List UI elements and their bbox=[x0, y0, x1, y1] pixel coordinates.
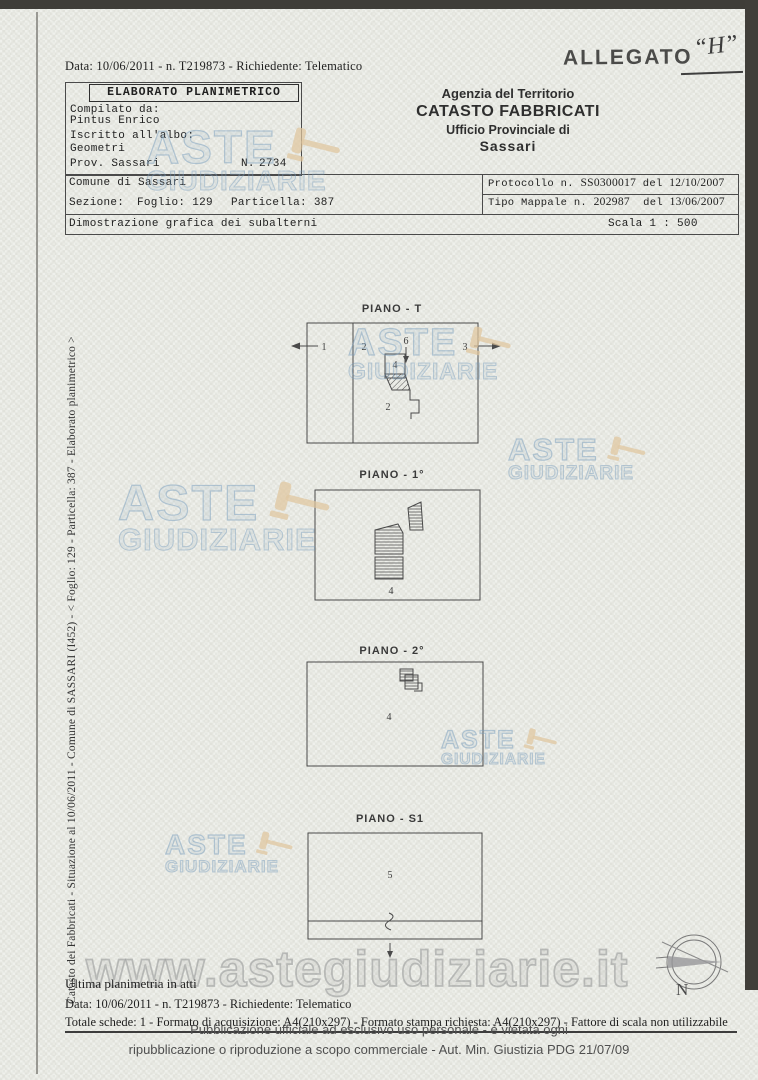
subaltern-4: 4 bbox=[389, 586, 394, 597]
scala-value: Scala 1 : 500 bbox=[608, 218, 698, 230]
table-divider-horizontal bbox=[66, 214, 738, 215]
plan-2-label: PIANO - 2° bbox=[359, 645, 424, 657]
sezione-label: Sezione: bbox=[69, 197, 124, 209]
mappale-label: Tipo Mappale n. bbox=[488, 197, 587, 209]
protocollo-date: 12/10/2007 bbox=[669, 177, 724, 189]
subaltern-2b: 2 bbox=[386, 402, 391, 413]
compass-icon bbox=[652, 928, 736, 1006]
plan-1-label: PIANO - 1° bbox=[359, 469, 424, 481]
watermark-aste-giudiziarie: ASTE GIUDIZIARIE bbox=[165, 831, 296, 875]
plan-t-label: PIANO - T bbox=[362, 303, 422, 315]
watermark-word-giudiziarie: GIUDIZIARIE bbox=[146, 168, 345, 194]
protocollo-del: del bbox=[643, 178, 663, 190]
subaltern-1: 1 bbox=[322, 342, 327, 353]
subaltern-5: 5 bbox=[388, 870, 393, 881]
protocollo-number: SS0300017 bbox=[580, 177, 636, 189]
stairwell-hatch-b bbox=[405, 675, 418, 689]
protocollo-label: Protocollo n. bbox=[488, 178, 574, 190]
scan-edge-left bbox=[36, 12, 38, 1074]
plan-s1-label: PIANO - S1 bbox=[356, 813, 424, 825]
mappale-del: del bbox=[643, 197, 663, 209]
watermark-word-giudiziarie: GIUDIZIARIE bbox=[348, 361, 515, 382]
tipo-mappale-row: Tipo Mappale n. 202987 del 13/06/2007 bbox=[488, 196, 725, 209]
protocollo-row: Protocollo n. SS0300017 del 12/10/2007 bbox=[488, 177, 725, 190]
agency-line1: Agenzia del Territorio bbox=[388, 86, 628, 101]
gavel-icon bbox=[263, 481, 335, 526]
side-rotated-caption: Catasto dei Fabbricati - Situazione al 1… bbox=[66, 282, 78, 1004]
north-label: N bbox=[676, 980, 688, 1000]
watermark-aste-giudiziarie: ASTE GIUDIZIARIE bbox=[441, 728, 560, 767]
agency-heading: Agenzia del Territorio CATASTO FABBRICAT… bbox=[388, 86, 628, 154]
footer-data-line: Data: 10/06/2011 - n. T219873 - Richiede… bbox=[65, 997, 351, 1012]
north-compass bbox=[652, 928, 736, 1011]
watermark-word-giudiziarie: GIUDIZIARIE bbox=[508, 465, 649, 482]
watermark-word-aste: ASTE bbox=[441, 729, 516, 752]
elaborato-title: ELABORATO PLANIMETRICO bbox=[89, 84, 299, 102]
gavel-icon bbox=[281, 127, 345, 167]
agency-line2: CATASTO FABBRICATI bbox=[388, 103, 628, 121]
watermark-aste-giudiziarie: ASTE GIUDIZIARIE bbox=[508, 436, 649, 482]
gavel-icon bbox=[603, 436, 649, 465]
scan-edge-top bbox=[0, 0, 758, 9]
dimostrazione-label: Dimostrazione grafica dei subalterni bbox=[69, 218, 317, 230]
allegato-stamp: ALLEGATO bbox=[563, 45, 693, 70]
agency-line4: Sassari bbox=[388, 138, 628, 154]
stairwell-hatch-upper bbox=[375, 524, 403, 554]
gavel-icon bbox=[520, 728, 560, 753]
allegato-underline bbox=[681, 71, 743, 75]
iscritto-value: Geometri bbox=[70, 143, 125, 155]
scanned-cadastral-document: Data: 10/06/2011 - n. T219873 - Richiede… bbox=[0, 0, 758, 1080]
agency-line3: Ufficio Provinciale di bbox=[388, 123, 628, 137]
watermark-word-aste: ASTE bbox=[348, 326, 457, 361]
request-data-line: Data: 10/06/2011 - n. T219873 - Richiede… bbox=[65, 59, 362, 74]
subaltern-4: 4 bbox=[387, 712, 392, 723]
stairwell-hatch-small bbox=[408, 502, 423, 530]
watermark-word-aste: ASTE bbox=[118, 480, 259, 526]
watermark-word-aste: ASTE bbox=[508, 436, 599, 465]
watermark-word-aste: ASTE bbox=[146, 126, 277, 168]
watermark-aste-giudiziarie: ASTE GIUDIZIARIE bbox=[118, 480, 335, 555]
watermark-word-giudiziarie: GIUDIZIARIE bbox=[441, 753, 560, 767]
ultima-planimetria-note: Ultima planimetria in atti bbox=[65, 976, 197, 992]
foglio-value: Foglio: 129 bbox=[137, 197, 213, 209]
allegato-handwritten-value: “H” bbox=[693, 31, 740, 62]
watermark-word-giudiziarie: GIUDIZIARIE bbox=[165, 859, 296, 875]
publication-notice-line2: ripubblicazione o riproduzione a scopo c… bbox=[59, 1042, 699, 1057]
mappale-date: 13/06/2007 bbox=[670, 196, 725, 208]
watermark-aste-giudiziarie: ASTE GIUDIZIARIE bbox=[348, 326, 515, 382]
stairwell-hatch-lower bbox=[375, 557, 403, 579]
plan-s1-outline bbox=[308, 833, 482, 939]
particella-value: Particella: 387 bbox=[231, 197, 335, 209]
watermark-word-aste: ASTE bbox=[165, 832, 248, 858]
gavel-icon bbox=[461, 326, 515, 360]
publication-notice-line1: Pubblicazione ufficiale ad esclusivo uso… bbox=[59, 1022, 699, 1037]
mappale-number: 202987 bbox=[594, 196, 630, 208]
gavel-icon bbox=[252, 831, 296, 859]
watermark-word-giudiziarie: GIUDIZIARIE bbox=[118, 526, 335, 555]
scan-edge-right bbox=[745, 0, 758, 990]
watermark-aste-giudiziarie: ASTE GIUDIZIARIE bbox=[146, 126, 345, 194]
table-divider-protocollo bbox=[482, 194, 738, 195]
